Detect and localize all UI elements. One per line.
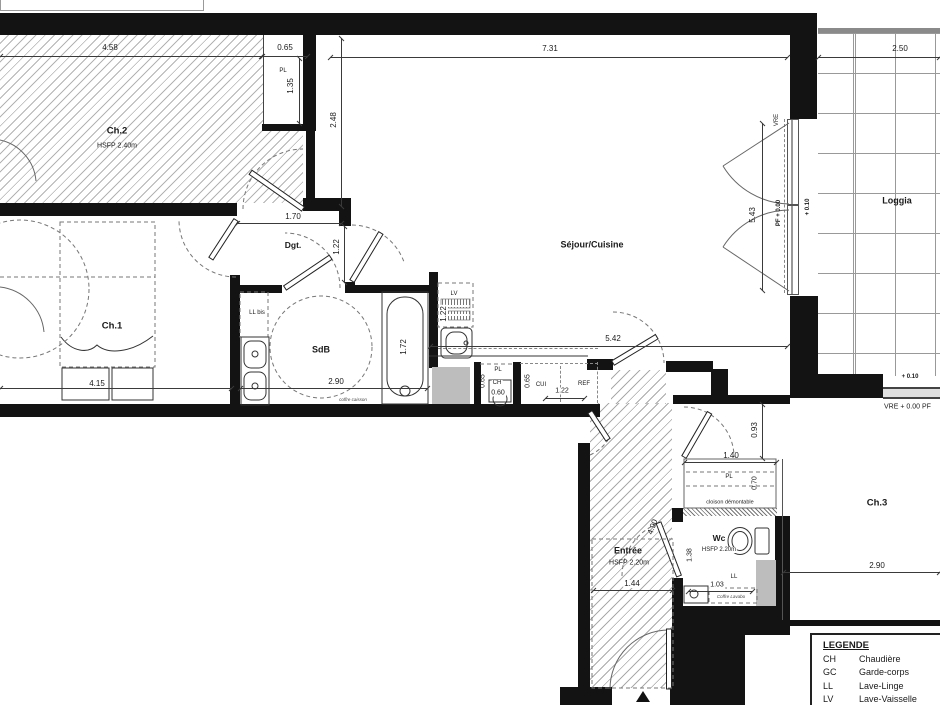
- ch3-left-line: [782, 459, 783, 620]
- closet-pl-ch2-label: PL: [279, 68, 286, 74]
- door-arc-dgt-sejour: [352, 225, 404, 262]
- wall: [306, 131, 315, 201]
- dim-ch1-width: 4.15: [88, 380, 106, 388]
- dim-line: [299, 58, 300, 124]
- legend-abbr: LV: [823, 695, 859, 705]
- closet-pl-kitchen-label: PL: [494, 367, 501, 373]
- entree-hatch-top: [611, 370, 666, 404]
- legend: LEGENDE CH Chaudière GC Garde-corps LL L…: [810, 633, 940, 705]
- fridge-ref-label: REF: [578, 381, 590, 387]
- room-label-ch1: Ch.1: [102, 321, 123, 331]
- room-ch2-hatch: [0, 35, 303, 203]
- dim-wc-depth: 1.38: [687, 548, 694, 562]
- legend-row: CH Chaudière: [823, 655, 940, 665]
- dim-ch2-pl-width: 0.65: [277, 44, 293, 52]
- sink: [244, 341, 266, 368]
- closet-pl-ch3-label: PL: [725, 474, 732, 480]
- vanity: [241, 337, 269, 405]
- floor-plan: 4.58 0.65 PL 1.35 Ch.2 HSFP 2.40m 7.31 2…: [0, 0, 940, 705]
- level-pf: PF + 0.00: [776, 200, 782, 226]
- room-label-dgt: Dgt.: [285, 241, 302, 250]
- legend-row: LL Lave-Linge: [823, 682, 940, 692]
- wall: [230, 285, 282, 293]
- wall: [587, 359, 613, 370]
- dim-line: [262, 56, 308, 57]
- wall: [672, 606, 790, 635]
- dim-line: [762, 123, 763, 291]
- wall: [578, 404, 590, 412]
- dishwasher-lv-label: LV: [451, 291, 458, 297]
- dim-ch2-pl-depth: 1.35: [287, 78, 295, 94]
- dim-loggia-depth: 5.43: [749, 207, 757, 223]
- legend-abbr: GC: [823, 668, 859, 678]
- dim-lv-depth: 1.22: [440, 305, 448, 323]
- wall: [262, 124, 310, 131]
- window-sash-swing-upper: [723, 123, 789, 204]
- legend-abbr: LL: [823, 682, 859, 692]
- washer-ll-label: LL: [731, 574, 738, 580]
- shaft: [432, 367, 470, 404]
- wall: [560, 687, 612, 705]
- dim-line: [545, 398, 585, 399]
- dim-line: [762, 404, 763, 459]
- level-ch3-window: VRE + 0.00 PF: [884, 404, 931, 411]
- wall: [672, 508, 683, 522]
- turning-circle-ch1: [0, 220, 89, 358]
- dim-sdb-width: 2.90: [327, 378, 345, 386]
- room-hsfp-entree: HSFP 2.20m: [609, 560, 649, 567]
- dim-sejour-left-depth: 2.48: [330, 112, 338, 128]
- annotation-coffre-sdb: coffre caisson: [339, 398, 367, 403]
- dim-loggia-width: 2.50: [892, 45, 908, 53]
- dim-dgt-width: 1.70: [285, 213, 301, 221]
- room-label-entree: Entrée: [614, 547, 642, 556]
- dim-ch3-width: 2.90: [869, 562, 885, 570]
- door-arc-ch3: [684, 407, 734, 457]
- door-arc-ch1: [179, 220, 236, 277]
- dim-line: [0, 56, 262, 57]
- room-label-sdb: SdB: [312, 346, 330, 355]
- washer-ll-bis-label: LL bis: [249, 310, 265, 316]
- door-arc-ch1-left: [0, 287, 44, 332]
- dim-pl-kitchen-depth: 0.65: [480, 374, 487, 388]
- wall: [672, 578, 683, 608]
- dim-wc-width: 1.03: [709, 582, 725, 589]
- kitchen-beam-dashed: [520, 363, 598, 364]
- wall: [0, 203, 237, 216]
- bed-blanket: [61, 336, 153, 351]
- legend-label: Garde-corps: [859, 668, 909, 678]
- dim-line: [593, 590, 673, 591]
- wall: [818, 374, 883, 398]
- loggia-floor: [818, 33, 940, 376]
- door-leaf-dgt-sejour: [350, 232, 383, 283]
- wall: [513, 362, 521, 404]
- wall: [429, 272, 438, 368]
- level-vre: VRE: [774, 114, 780, 126]
- window-dashed-line: [784, 119, 785, 293]
- kitchen-divider-dashed: [560, 366, 561, 402]
- window-glazing: [791, 120, 793, 294]
- legend-title: LEGENDE: [823, 640, 940, 651]
- room-hsfp-wc: HSFP 2.20m: [701, 547, 737, 553]
- legend-abbr: CH: [823, 655, 859, 665]
- dim-line: [783, 572, 940, 573]
- wall: [355, 285, 429, 293]
- toilet-tank: [755, 528, 769, 554]
- dim-line: [688, 591, 753, 592]
- window-pf-ch3: [883, 387, 940, 399]
- dim-ch3-pl-width: 1.40: [723, 452, 739, 460]
- annotation-coffre-ll: Coffre Lavabo: [717, 595, 745, 600]
- entrance-arrow: [636, 691, 650, 702]
- dim-dgt-depth: 1.22: [333, 239, 341, 255]
- dim-cui-width: 1.22: [554, 388, 570, 395]
- door-leaf-sdb: [284, 255, 332, 290]
- level-loggia-bottom: + 0.10: [902, 374, 919, 380]
- room-label-wc: Wc: [713, 534, 726, 543]
- wall: [0, 13, 817, 35]
- dim-line: [240, 388, 428, 389]
- dim-ch2-width: 4.58: [102, 44, 118, 52]
- shaft: [756, 560, 776, 606]
- dim-line: [430, 346, 788, 347]
- dim-line: [818, 57, 940, 58]
- dim-bath-length: 1.72: [400, 338, 408, 356]
- wall: [790, 296, 818, 398]
- wall: [711, 369, 728, 398]
- cloison-demontable-band: [683, 508, 777, 516]
- window-rail: [788, 204, 798, 206]
- room-label-ch2: Ch.2: [107, 126, 128, 136]
- dim-sejour-length: 5.42: [605, 335, 621, 343]
- legend-label: Chaudière: [859, 655, 901, 665]
- wall: [0, 404, 600, 417]
- legend-row: LV Lave-Vaisselle: [823, 695, 940, 705]
- hand-basin: [684, 586, 708, 603]
- dim-line: [330, 57, 788, 58]
- door-leaf-ch3: [682, 412, 712, 459]
- legend-label: Lave-Linge: [859, 682, 904, 692]
- kitchen-dashed-line: [438, 348, 598, 349]
- wall: [790, 35, 817, 119]
- cooker-cui-label: CUI: [536, 382, 546, 388]
- kitchen-sink: [441, 328, 472, 358]
- kitchen-edge-dashed: [597, 362, 598, 403]
- dim-line: [344, 226, 345, 283]
- dim-ch-width: 0.60: [490, 390, 506, 397]
- room-label-sejour: Séjour/Cuisine: [560, 241, 623, 250]
- kitchen-sink-drain: [464, 341, 468, 345]
- window-vre-sejour: [787, 119, 799, 295]
- dim-line: [0, 388, 232, 389]
- dim-line: [237, 223, 342, 224]
- dim-line: [341, 38, 342, 207]
- room-label-ch3: Ch.3: [867, 498, 888, 508]
- dim-ch3-pl-depth: 0.70: [752, 476, 759, 490]
- wall: [790, 620, 940, 626]
- dim-ch3-entry: 0.93: [751, 422, 759, 438]
- nightstand: [112, 368, 153, 400]
- annotation-cloison: cloison démontable: [706, 500, 753, 506]
- sink: [244, 372, 266, 400]
- wall: [673, 395, 790, 404]
- dim-cui-depth: 0.65: [525, 374, 532, 388]
- dim-entree-width: 1.44: [623, 580, 641, 588]
- level-loggia: + 0.10: [805, 199, 811, 216]
- sink-drain: [252, 351, 258, 357]
- legend-row: GC Garde-corps: [823, 668, 940, 678]
- boiler-ch-label: CH: [492, 380, 503, 386]
- dim-line: [684, 462, 777, 463]
- wall: [666, 361, 713, 372]
- room-label-loggia: Loggia: [882, 197, 912, 206]
- room-hsfp-ch2: HSFP 2.40m: [97, 143, 137, 150]
- wall: [303, 35, 316, 131]
- wall: [578, 443, 590, 688]
- bed: [60, 222, 155, 367]
- kitchen-sink-basin: [446, 332, 467, 354]
- dim-sejour-width: 7.31: [542, 45, 558, 53]
- title-block-fragment: [0, 0, 204, 11]
- wall: [670, 634, 745, 705]
- legend-label: Lave-Vaisselle: [859, 695, 917, 705]
